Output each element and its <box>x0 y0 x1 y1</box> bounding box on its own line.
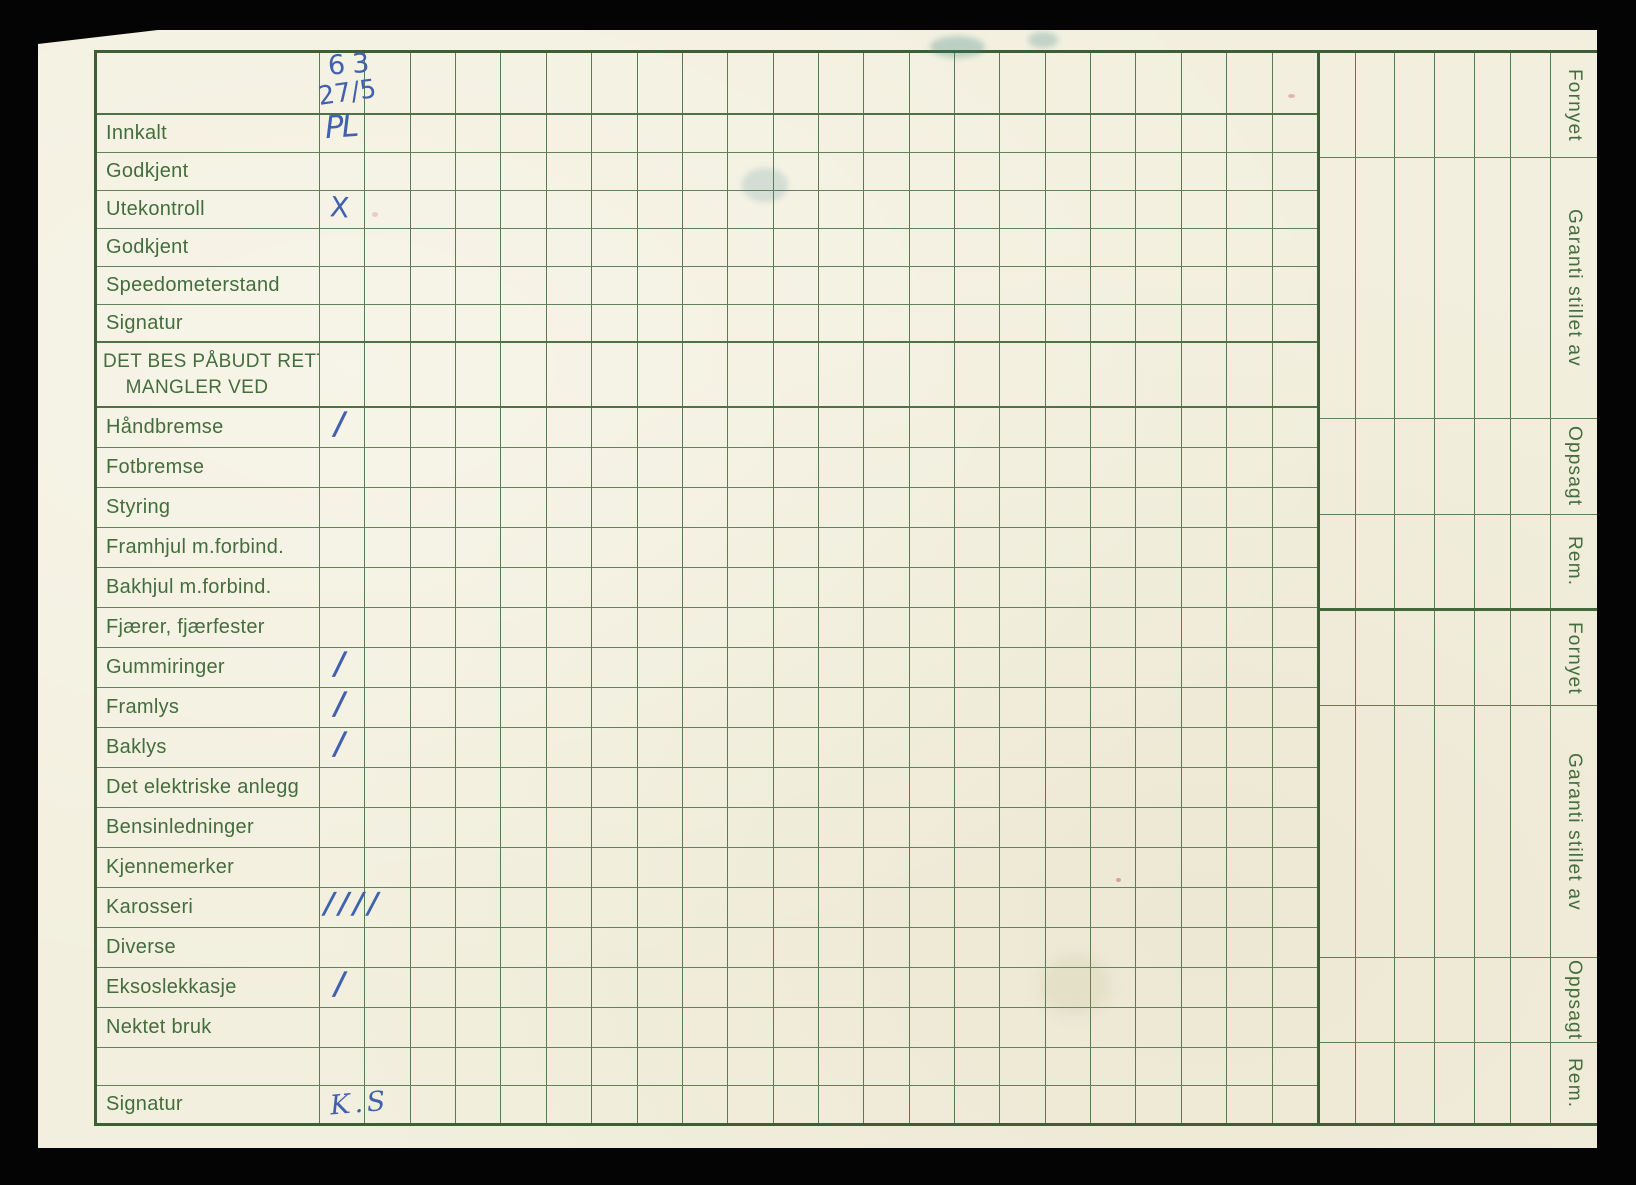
grid-cell <box>547 191 592 228</box>
grid-cell <box>501 968 546 1007</box>
grid-cell <box>501 848 546 887</box>
grid-cell <box>955 648 1000 687</box>
grid-cell <box>501 1086 546 1123</box>
grid-cell <box>910 568 955 607</box>
grid-cell <box>1136 688 1181 727</box>
grid-cell <box>1091 448 1136 487</box>
right-grid-cell <box>1475 158 1511 418</box>
grid-cell <box>774 608 819 647</box>
grid-cell <box>910 768 955 807</box>
right-section: Garanti stillet av <box>1320 706 1597 958</box>
grid-cell <box>864 343 909 406</box>
grid-cell <box>320 343 365 406</box>
table-row: Håndbremse/ <box>97 408 1317 448</box>
right-grid-cell <box>1320 611 1356 705</box>
grid-cell <box>1046 1086 1091 1123</box>
row-label: Utekontroll <box>106 198 205 221</box>
grid-cell <box>547 267 592 304</box>
grid-cell <box>1273 728 1317 767</box>
grid-cell <box>1182 343 1227 406</box>
grid-cell <box>501 153 546 190</box>
table-row: DET BES PÅBUDT RETTETMANGLER VED <box>97 343 1317 408</box>
grid-cell <box>1136 1008 1181 1047</box>
grid-cell <box>1273 648 1317 687</box>
grid-cell <box>456 53 501 113</box>
grid-cell <box>1227 343 1272 406</box>
grid-cell <box>1136 968 1181 1007</box>
row-label-cell: Utekontroll <box>97 191 320 228</box>
grid-cell <box>501 448 546 487</box>
grid-cell <box>501 608 546 647</box>
handwritten-mark: X <box>329 190 350 224</box>
paper-sheet: 6327/5InnkaltPLGodkjentUtekontrollXGodkj… <box>38 30 1597 1148</box>
grid-cell <box>1091 1086 1136 1123</box>
grid-cell <box>1000 728 1045 767</box>
row-label-cell <box>97 53 320 113</box>
grid-cell <box>592 191 637 228</box>
grid-cell <box>1136 153 1181 190</box>
right-grid-cell <box>1356 158 1395 418</box>
grid-cell <box>592 488 637 527</box>
grid-cell <box>1000 648 1045 687</box>
row-label: Kjennemerker <box>106 856 234 879</box>
row-label: Framlys <box>106 696 179 719</box>
grid-cell <box>819 305 864 341</box>
right-section-label-cell: Garanti stillet av <box>1551 158 1597 418</box>
grid-cell <box>1227 191 1272 228</box>
handwritten-mark: / <box>331 646 349 682</box>
grid-cell <box>819 888 864 927</box>
grid-cell <box>864 648 909 687</box>
grid-cell <box>1000 888 1045 927</box>
grid-cell <box>456 728 501 767</box>
grid-cell <box>1136 448 1181 487</box>
grid-cell <box>1091 608 1136 647</box>
grid-cell <box>1136 191 1181 228</box>
right-grid-cell <box>1475 419 1511 514</box>
right-grid-cell <box>1395 158 1435 418</box>
grid-cell <box>1046 968 1091 1007</box>
grid-cell <box>1091 1008 1136 1047</box>
grid-cell <box>365 568 410 607</box>
grid-cell <box>411 1048 456 1085</box>
right-grid-cell <box>1511 515 1551 608</box>
grid-cell <box>592 928 637 967</box>
grid-cell <box>411 808 456 847</box>
grid-cell <box>365 343 410 406</box>
grid-cell <box>411 648 456 687</box>
grid-cell: / <box>320 648 365 687</box>
grid-cell <box>819 343 864 406</box>
grid-cell <box>1273 688 1317 727</box>
right-grid-cell <box>1395 53 1435 157</box>
right-section-label-cell: Rem. <box>1551 515 1597 608</box>
grid-cell <box>547 408 592 447</box>
table-row: Fotbremse <box>97 448 1317 488</box>
right-grid-cell <box>1475 1043 1511 1123</box>
grid-cell <box>728 153 773 190</box>
grid-cell <box>1182 115 1227 152</box>
grid-cell <box>819 115 864 152</box>
right-section: Oppsagt <box>1320 419 1597 515</box>
grid-cell <box>728 115 773 152</box>
grid-cell <box>1273 115 1317 152</box>
grid-cell <box>411 608 456 647</box>
row-label: Eksoslekkasje <box>106 976 237 999</box>
grid-cell <box>1273 1008 1317 1047</box>
grid-cell <box>1046 648 1091 687</box>
right-section-label-cell: Rem. <box>1551 1043 1597 1123</box>
grid-cell <box>683 888 728 927</box>
grid-cell <box>501 528 546 567</box>
grid-cell <box>320 608 365 647</box>
grid-cell <box>365 528 410 567</box>
grid-cell <box>547 528 592 567</box>
grid-cell <box>955 53 1000 113</box>
row-label: Framhjul m.forbind. <box>106 536 284 559</box>
grid-cell <box>683 928 728 967</box>
row-label-cell: Baklys <box>97 728 320 767</box>
grid-cell <box>864 728 909 767</box>
grid-cell <box>547 115 592 152</box>
grid-cell <box>1046 408 1091 447</box>
table-row: Kjennemerker <box>97 848 1317 888</box>
grid-cell <box>955 728 1000 767</box>
grid-cell <box>1136 267 1181 304</box>
table-row: Framhjul m.forbind. <box>97 528 1317 568</box>
right-grid-cell <box>1435 158 1475 418</box>
right-section-label-cell: Fornyet <box>1551 53 1597 157</box>
grid-cell <box>774 488 819 527</box>
grid-cell <box>1136 53 1181 113</box>
grid-cell <box>1182 488 1227 527</box>
grid-cell <box>728 191 773 228</box>
grid-cell <box>683 1048 728 1085</box>
grid-cell <box>1227 928 1272 967</box>
grid-cell <box>320 568 365 607</box>
grid-cell <box>592 568 637 607</box>
grid-cell <box>547 768 592 807</box>
grid-cell <box>592 648 637 687</box>
grid-cell <box>638 1048 683 1085</box>
inspection-card: 6327/5InnkaltPLGodkjentUtekontrollXGodkj… <box>94 50 1597 1126</box>
row-label: Speedometerstand <box>106 274 280 297</box>
grid-cell <box>728 768 773 807</box>
section-header-line2: MANGLER VED <box>126 375 297 401</box>
grid-cell <box>1046 488 1091 527</box>
grid-cell <box>456 688 501 727</box>
row-label: Godkjent <box>106 236 188 259</box>
grid-cell <box>955 888 1000 927</box>
grid-cell <box>910 267 955 304</box>
handwritten-mark: / <box>331 406 349 442</box>
grid-cell <box>1000 928 1045 967</box>
row-label: Det elektriske anlegg <box>106 776 299 799</box>
grid-cell <box>365 848 410 887</box>
grid-cell <box>320 153 365 190</box>
grid-cell <box>638 343 683 406</box>
grid-cell <box>1046 115 1091 152</box>
grid-cell: / <box>320 968 365 1007</box>
row-label: Godkjent <box>106 160 188 183</box>
grid-cell <box>456 608 501 647</box>
grid-cell <box>864 153 909 190</box>
right-grid-cell <box>1320 53 1356 157</box>
row-label: Styring <box>106 496 170 519</box>
right-grid-cell <box>1511 958 1551 1042</box>
right-section-label: Garanti stillet av <box>1563 209 1585 367</box>
grid-cell <box>683 448 728 487</box>
grid-cell <box>501 688 546 727</box>
grid-cell <box>320 1048 365 1085</box>
right-section-label-cell: Fornyet <box>1551 611 1597 705</box>
grid-cell <box>1273 888 1317 927</box>
grid-cell <box>592 728 637 767</box>
grid-cell <box>683 968 728 1007</box>
right-grid-cell <box>1320 158 1356 418</box>
grid-cell: 6327/5 <box>320 53 365 113</box>
grid-cell <box>456 648 501 687</box>
grid-cell <box>1091 968 1136 1007</box>
grid-cell <box>592 968 637 1007</box>
grid-cell <box>1136 408 1181 447</box>
grid-cell <box>411 115 456 152</box>
grid-cell <box>683 608 728 647</box>
grid-cell <box>1227 968 1272 1007</box>
row-label-cell: Signatur <box>97 305 320 341</box>
grid-cell <box>1273 488 1317 527</box>
grid-cell <box>955 229 1000 266</box>
grid-cell: / <box>320 728 365 767</box>
table-row: Eksoslekkasje/ <box>97 968 1317 1008</box>
grid-cell <box>728 408 773 447</box>
grid-cell <box>1000 1048 1045 1085</box>
grid-cell <box>365 1048 410 1085</box>
grid-cell <box>547 608 592 647</box>
row-label-cell: Kjennemerker <box>97 848 320 887</box>
right-grid-cell <box>1395 611 1435 705</box>
right-section-label: Rem. <box>1563 536 1585 586</box>
grid-cell <box>501 191 546 228</box>
grid-cell <box>955 968 1000 1007</box>
grid-cell <box>638 928 683 967</box>
grid-cell <box>910 229 955 266</box>
grid-cell <box>1227 53 1272 113</box>
right-section-label: Garanti stillet av <box>1563 753 1585 911</box>
grid-cell <box>1046 448 1091 487</box>
row-label-cell: Bensinledninger <box>97 808 320 847</box>
grid-cell <box>1000 848 1045 887</box>
grid-cell <box>547 1008 592 1047</box>
grid-cell <box>1227 448 1272 487</box>
grid-cell <box>774 191 819 228</box>
grid-cell <box>1273 1048 1317 1085</box>
grid-cell <box>1182 688 1227 727</box>
grid-cell <box>1182 448 1227 487</box>
grid-cell <box>774 768 819 807</box>
grid-cell <box>638 153 683 190</box>
grid-cell <box>365 488 410 527</box>
grid-cell <box>864 808 909 847</box>
grid-cell <box>864 448 909 487</box>
grid-cell <box>1136 888 1181 927</box>
row-label-cell: Styring <box>97 488 320 527</box>
grid-cell <box>592 768 637 807</box>
grid-cell <box>1000 1086 1045 1123</box>
grid-cell <box>592 153 637 190</box>
row-label: Signatur <box>106 312 183 335</box>
grid-cell <box>638 229 683 266</box>
grid-cell <box>819 448 864 487</box>
grid-cell <box>864 1048 909 1085</box>
grid-cell <box>501 928 546 967</box>
grid-cell <box>456 448 501 487</box>
grid-cell <box>910 728 955 767</box>
grid-cell <box>683 267 728 304</box>
right-grid-cell <box>1320 515 1356 608</box>
grid-cell <box>1000 688 1045 727</box>
grid-cell <box>456 808 501 847</box>
grid-cell <box>638 688 683 727</box>
grid-cell: / <box>320 408 365 447</box>
grid-cell <box>365 728 410 767</box>
grid-cell <box>1091 888 1136 927</box>
row-label: Karosseri <box>106 896 193 919</box>
grid-cell <box>1182 305 1227 341</box>
grid-cell <box>1227 848 1272 887</box>
grid-cell <box>456 153 501 190</box>
grid-cell <box>1182 728 1227 767</box>
grid-cell <box>1046 808 1091 847</box>
grid-cell <box>1273 53 1317 113</box>
grid-cell <box>1091 768 1136 807</box>
row-label: Nektet bruk <box>106 1016 212 1039</box>
grid-cell <box>592 528 637 567</box>
grid-cell <box>411 153 456 190</box>
grid-cell <box>1227 528 1272 567</box>
grid-cell <box>547 488 592 527</box>
grid-cell <box>320 928 365 967</box>
grid-cell <box>456 848 501 887</box>
grid-cell <box>774 448 819 487</box>
grid-cell <box>365 53 410 113</box>
grid-cell <box>1227 728 1272 767</box>
grid-cell <box>910 848 955 887</box>
grid-cell <box>1091 848 1136 887</box>
row-label-cell: Nektet bruk <box>97 1008 320 1047</box>
table-row: Fjærer, fjærfester <box>97 608 1317 648</box>
grid-cell <box>1000 1008 1045 1047</box>
table-row: Framlys/ <box>97 688 1317 728</box>
grid-cell <box>728 928 773 967</box>
grid-cell <box>456 115 501 152</box>
row-label: Håndbremse <box>106 416 224 439</box>
grid-cell <box>864 267 909 304</box>
grid-cell <box>819 488 864 527</box>
grid-cell <box>728 688 773 727</box>
grid-cell <box>955 928 1000 967</box>
grid-cell <box>1000 448 1045 487</box>
grid-cell <box>592 408 637 447</box>
grid-cell <box>774 53 819 113</box>
grid-cell <box>1182 888 1227 927</box>
main-table: 6327/5InnkaltPLGodkjentUtekontrollXGodkj… <box>97 53 1320 1123</box>
grid-cell <box>910 528 955 567</box>
right-section: Fornyet <box>1320 611 1597 706</box>
grid-cell <box>320 768 365 807</box>
grid-cell <box>592 115 637 152</box>
right-section: Garanti stillet av <box>1320 158 1597 419</box>
right-section-label-cell: Oppsagt <box>1551 419 1597 514</box>
grid-cell <box>864 229 909 266</box>
grid-cell <box>1227 648 1272 687</box>
right-grid-cell <box>1511 419 1551 514</box>
grid-cell <box>1273 848 1317 887</box>
grid-cell <box>547 1048 592 1085</box>
table-row: Det elektriske anlegg <box>97 768 1317 808</box>
grid-cell <box>1000 267 1045 304</box>
grid-cell <box>1000 808 1045 847</box>
grid-cell <box>728 1086 773 1123</box>
grid-cell <box>365 928 410 967</box>
row-label-cell <box>97 1048 320 1085</box>
grid-cell <box>728 648 773 687</box>
grid-cell <box>1136 848 1181 887</box>
right-grid-cell <box>1395 515 1435 608</box>
grid-cell <box>1136 1048 1181 1085</box>
grid-cell <box>683 153 728 190</box>
grid-cell <box>728 568 773 607</box>
table-row <box>97 1048 1317 1086</box>
grid-cell <box>819 968 864 1007</box>
grid-cell <box>365 115 410 152</box>
right-grid-cell <box>1511 53 1551 157</box>
grid-cell <box>728 968 773 1007</box>
grid-cell <box>638 408 683 447</box>
grid-cell <box>683 305 728 341</box>
grid-cell <box>547 688 592 727</box>
row-label-cell: Fjærer, fjærfester <box>97 608 320 647</box>
grid-cell <box>683 53 728 113</box>
right-grid-cell <box>1320 706 1356 957</box>
right-grid-cell <box>1356 706 1395 957</box>
section-header-cell: DET BES PÅBUDT RETTETMANGLER VED <box>97 343 320 406</box>
grid-cell <box>365 448 410 487</box>
grid-cell <box>728 608 773 647</box>
grid-cell <box>819 153 864 190</box>
grid-cell <box>1273 343 1317 406</box>
grid-cell <box>1273 968 1317 1007</box>
table-row: Bakhjul m.forbind. <box>97 568 1317 608</box>
right-grid-cell <box>1435 1043 1475 1123</box>
grid-cell: PL <box>320 115 365 152</box>
handwritten-mark: / <box>331 686 349 722</box>
grid-cell <box>864 488 909 527</box>
grid-cell <box>683 848 728 887</box>
row-label-cell: Godkjent <box>97 153 320 190</box>
grid-cell <box>1273 1086 1317 1123</box>
grid-cell <box>592 305 637 341</box>
right-grid-cell <box>1395 706 1435 957</box>
row-label: Bensinledninger <box>106 816 254 839</box>
grid-cell <box>1136 928 1181 967</box>
grid-cell <box>955 1048 1000 1085</box>
grid-cell <box>1091 648 1136 687</box>
grid-cell <box>774 1008 819 1047</box>
grid-cell <box>819 728 864 767</box>
grid-cell <box>547 229 592 266</box>
scanned-document: 6327/5InnkaltPLGodkjentUtekontrollXGodkj… <box>0 0 1636 1185</box>
